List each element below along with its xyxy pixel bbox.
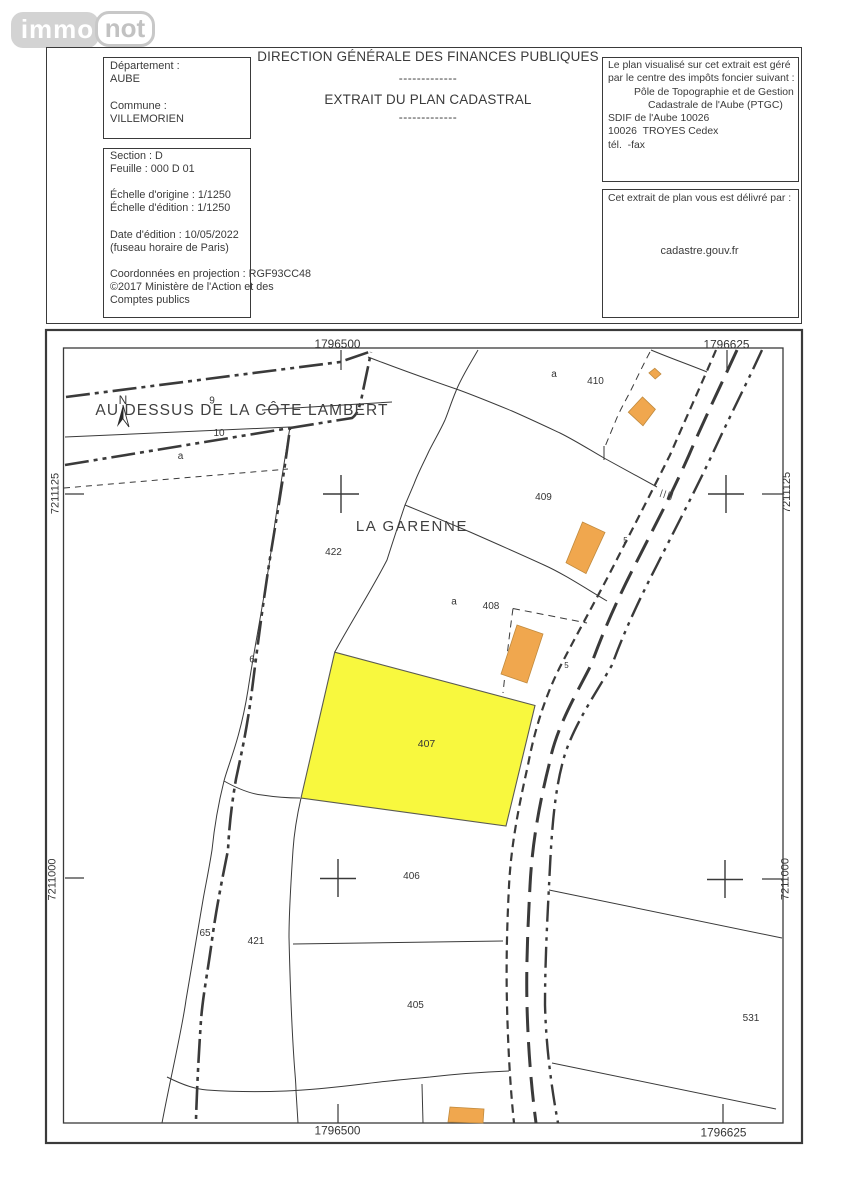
svg-text:a: a — [451, 597, 457, 608]
svg-text:10: 10 — [213, 428, 225, 439]
svg-text:1796625: 1796625 — [704, 338, 750, 352]
svg-text:LA GARENNE: LA GARENNE — [356, 518, 468, 535]
svg-text:422: 422 — [325, 547, 342, 558]
svg-text:531: 531 — [743, 1013, 760, 1024]
svg-text:5: 5 — [623, 536, 628, 545]
svg-text:1796500: 1796500 — [315, 337, 361, 351]
svg-text:7211125: 7211125 — [50, 473, 62, 514]
svg-text:1796500: 1796500 — [315, 1124, 361, 1138]
svg-text:1796625: 1796625 — [701, 1126, 747, 1140]
svg-text:410: 410 — [587, 376, 604, 387]
svg-text:a: a — [178, 451, 184, 462]
svg-text:7211000: 7211000 — [47, 858, 59, 900]
svg-text:7211000: 7211000 — [780, 858, 792, 900]
svg-text:409: 409 — [535, 492, 552, 503]
svg-text:408: 408 — [483, 601, 500, 612]
svg-text:7211125: 7211125 — [781, 472, 793, 513]
svg-text:65: 65 — [199, 928, 211, 939]
svg-text:N: N — [119, 393, 128, 407]
svg-text:6: 6 — [249, 655, 255, 666]
svg-text:406: 406 — [403, 871, 420, 882]
svg-text:405: 405 — [407, 1000, 424, 1011]
svg-text:AU DESSUS DE LA CÔTE LAMBERT: AU DESSUS DE LA CÔTE LAMBERT — [95, 402, 388, 419]
svg-text:9: 9 — [209, 396, 215, 407]
svg-text:5: 5 — [564, 661, 569, 670]
svg-text:421: 421 — [248, 936, 265, 947]
svg-text:407: 407 — [418, 738, 436, 750]
svg-text:a: a — [551, 369, 557, 380]
